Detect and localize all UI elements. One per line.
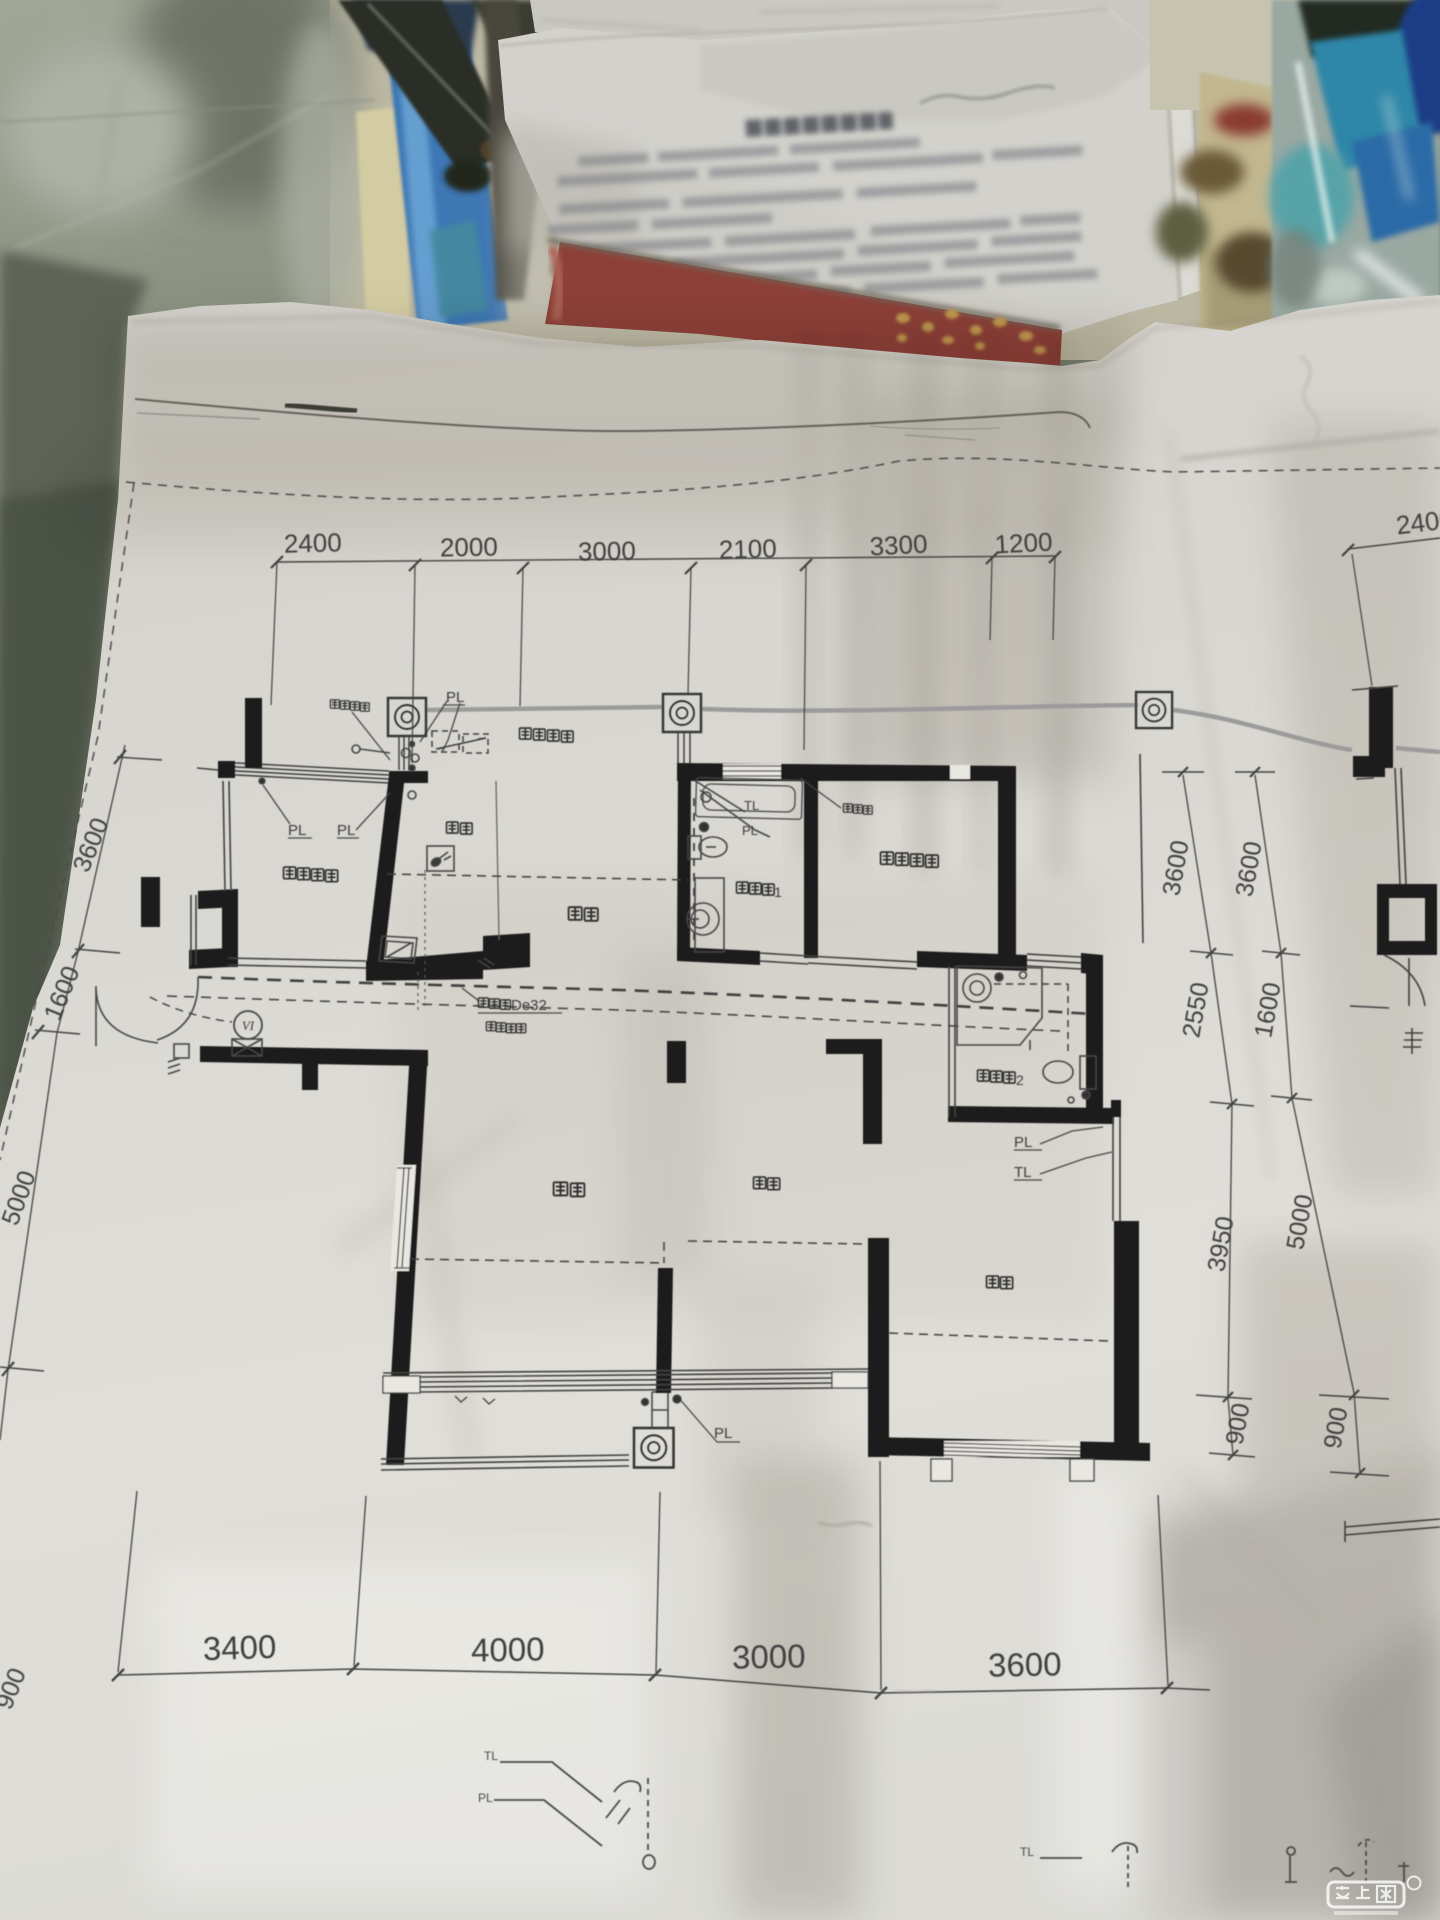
svg-text:3400: 3400 bbox=[202, 1628, 277, 1668]
svg-text:4000: 4000 bbox=[471, 1630, 545, 1668]
svg-text:VI: VI bbox=[242, 1018, 255, 1033]
svg-text:2400: 2400 bbox=[283, 527, 342, 559]
svg-text:2400: 2400 bbox=[1394, 504, 1440, 541]
svg-text:TL: TL bbox=[1014, 1164, 1032, 1181]
svg-text:2: 2 bbox=[1016, 1072, 1024, 1088]
svg-text:PL: PL bbox=[446, 689, 464, 706]
svg-text:PL: PL bbox=[478, 1791, 493, 1805]
svg-text:De32: De32 bbox=[511, 997, 547, 1014]
svg-text:3000: 3000 bbox=[732, 1637, 806, 1675]
svg-text:TL: TL bbox=[744, 798, 759, 813]
svg-text:3600: 3600 bbox=[988, 1645, 1062, 1683]
svg-text:1200: 1200 bbox=[994, 527, 1053, 560]
svg-text:PL: PL bbox=[1014, 1134, 1032, 1151]
svg-text:TL: TL bbox=[1020, 1845, 1034, 1859]
svg-text:3300: 3300 bbox=[869, 529, 928, 562]
svg-text:3000: 3000 bbox=[578, 535, 636, 566]
svg-text:PL: PL bbox=[288, 822, 306, 839]
svg-text:2000: 2000 bbox=[440, 531, 498, 562]
svg-text:TL: TL bbox=[484, 1749, 498, 1763]
svg-text:PL: PL bbox=[742, 823, 758, 838]
svg-text:PL: PL bbox=[714, 1425, 732, 1442]
svg-text:PL: PL bbox=[337, 822, 355, 839]
svg-text:2100: 2100 bbox=[718, 533, 777, 565]
svg-text:1: 1 bbox=[774, 884, 782, 900]
